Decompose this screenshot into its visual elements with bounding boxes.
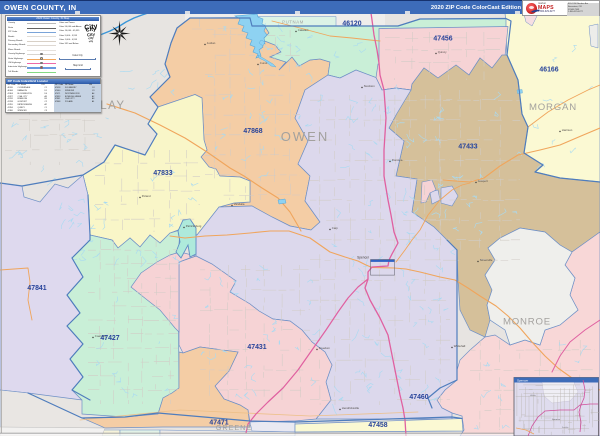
svg-text:Whitehall: Whitehall	[454, 344, 466, 348]
svg-text:Hillside: Hillside	[530, 395, 536, 397]
svg-text:46166: 46166	[539, 67, 558, 74]
svg-text:46120: 46120	[342, 21, 361, 28]
svg-text:Romona: Romona	[392, 158, 403, 162]
svg-text:Patricksburg: Patricksburg	[186, 224, 202, 228]
svg-text:Hendricksville: Hendricksville	[342, 406, 360, 410]
svg-text:47458: 47458	[368, 422, 387, 429]
svg-text:Gosport: Gosport	[478, 179, 488, 183]
svg-text:PUTNAM: PUTNAM	[282, 20, 304, 25]
svg-text:GREENE: GREENE	[216, 423, 252, 432]
svg-text:47841: 47841	[27, 285, 46, 292]
svg-text:47433: 47433	[458, 144, 477, 151]
svg-text:Harrison: Harrison	[562, 128, 573, 132]
svg-text:Cunot: Cunot	[260, 61, 268, 65]
svg-text:Spencer: Spencer	[517, 379, 528, 383]
svg-text:Cataract: Cataract	[298, 28, 309, 32]
svg-text:Jordan: Jordan	[207, 41, 216, 45]
svg-text:Stockton: Stockton	[364, 84, 375, 88]
svg-text:Franklin: Franklin	[562, 427, 568, 429]
svg-text:Stinesville: Stinesville	[480, 258, 493, 262]
svg-text:47456: 47456	[433, 36, 452, 43]
svg-text:MORGAN: MORGAN	[529, 102, 577, 113]
svg-text:Vandalia: Vandalia	[234, 202, 245, 206]
svg-text:Freedom: Freedom	[319, 346, 331, 350]
svg-text:OWEN: OWEN	[281, 129, 329, 144]
svg-text:47833: 47833	[153, 170, 172, 177]
svg-text:Poland: Poland	[142, 194, 151, 198]
svg-text:Spencer: Spencer	[357, 255, 370, 259]
svg-text:Quincy: Quincy	[438, 50, 447, 54]
svg-text:Spencer: Spencer	[552, 418, 560, 421]
svg-text:MONROE: MONROE	[503, 317, 551, 328]
svg-text:47427: 47427	[100, 335, 119, 342]
svg-text:Carp: Carp	[332, 226, 339, 230]
svg-text:47460: 47460	[409, 394, 428, 401]
svg-text:47431: 47431	[247, 344, 266, 351]
svg-text:47868: 47868	[243, 128, 262, 135]
